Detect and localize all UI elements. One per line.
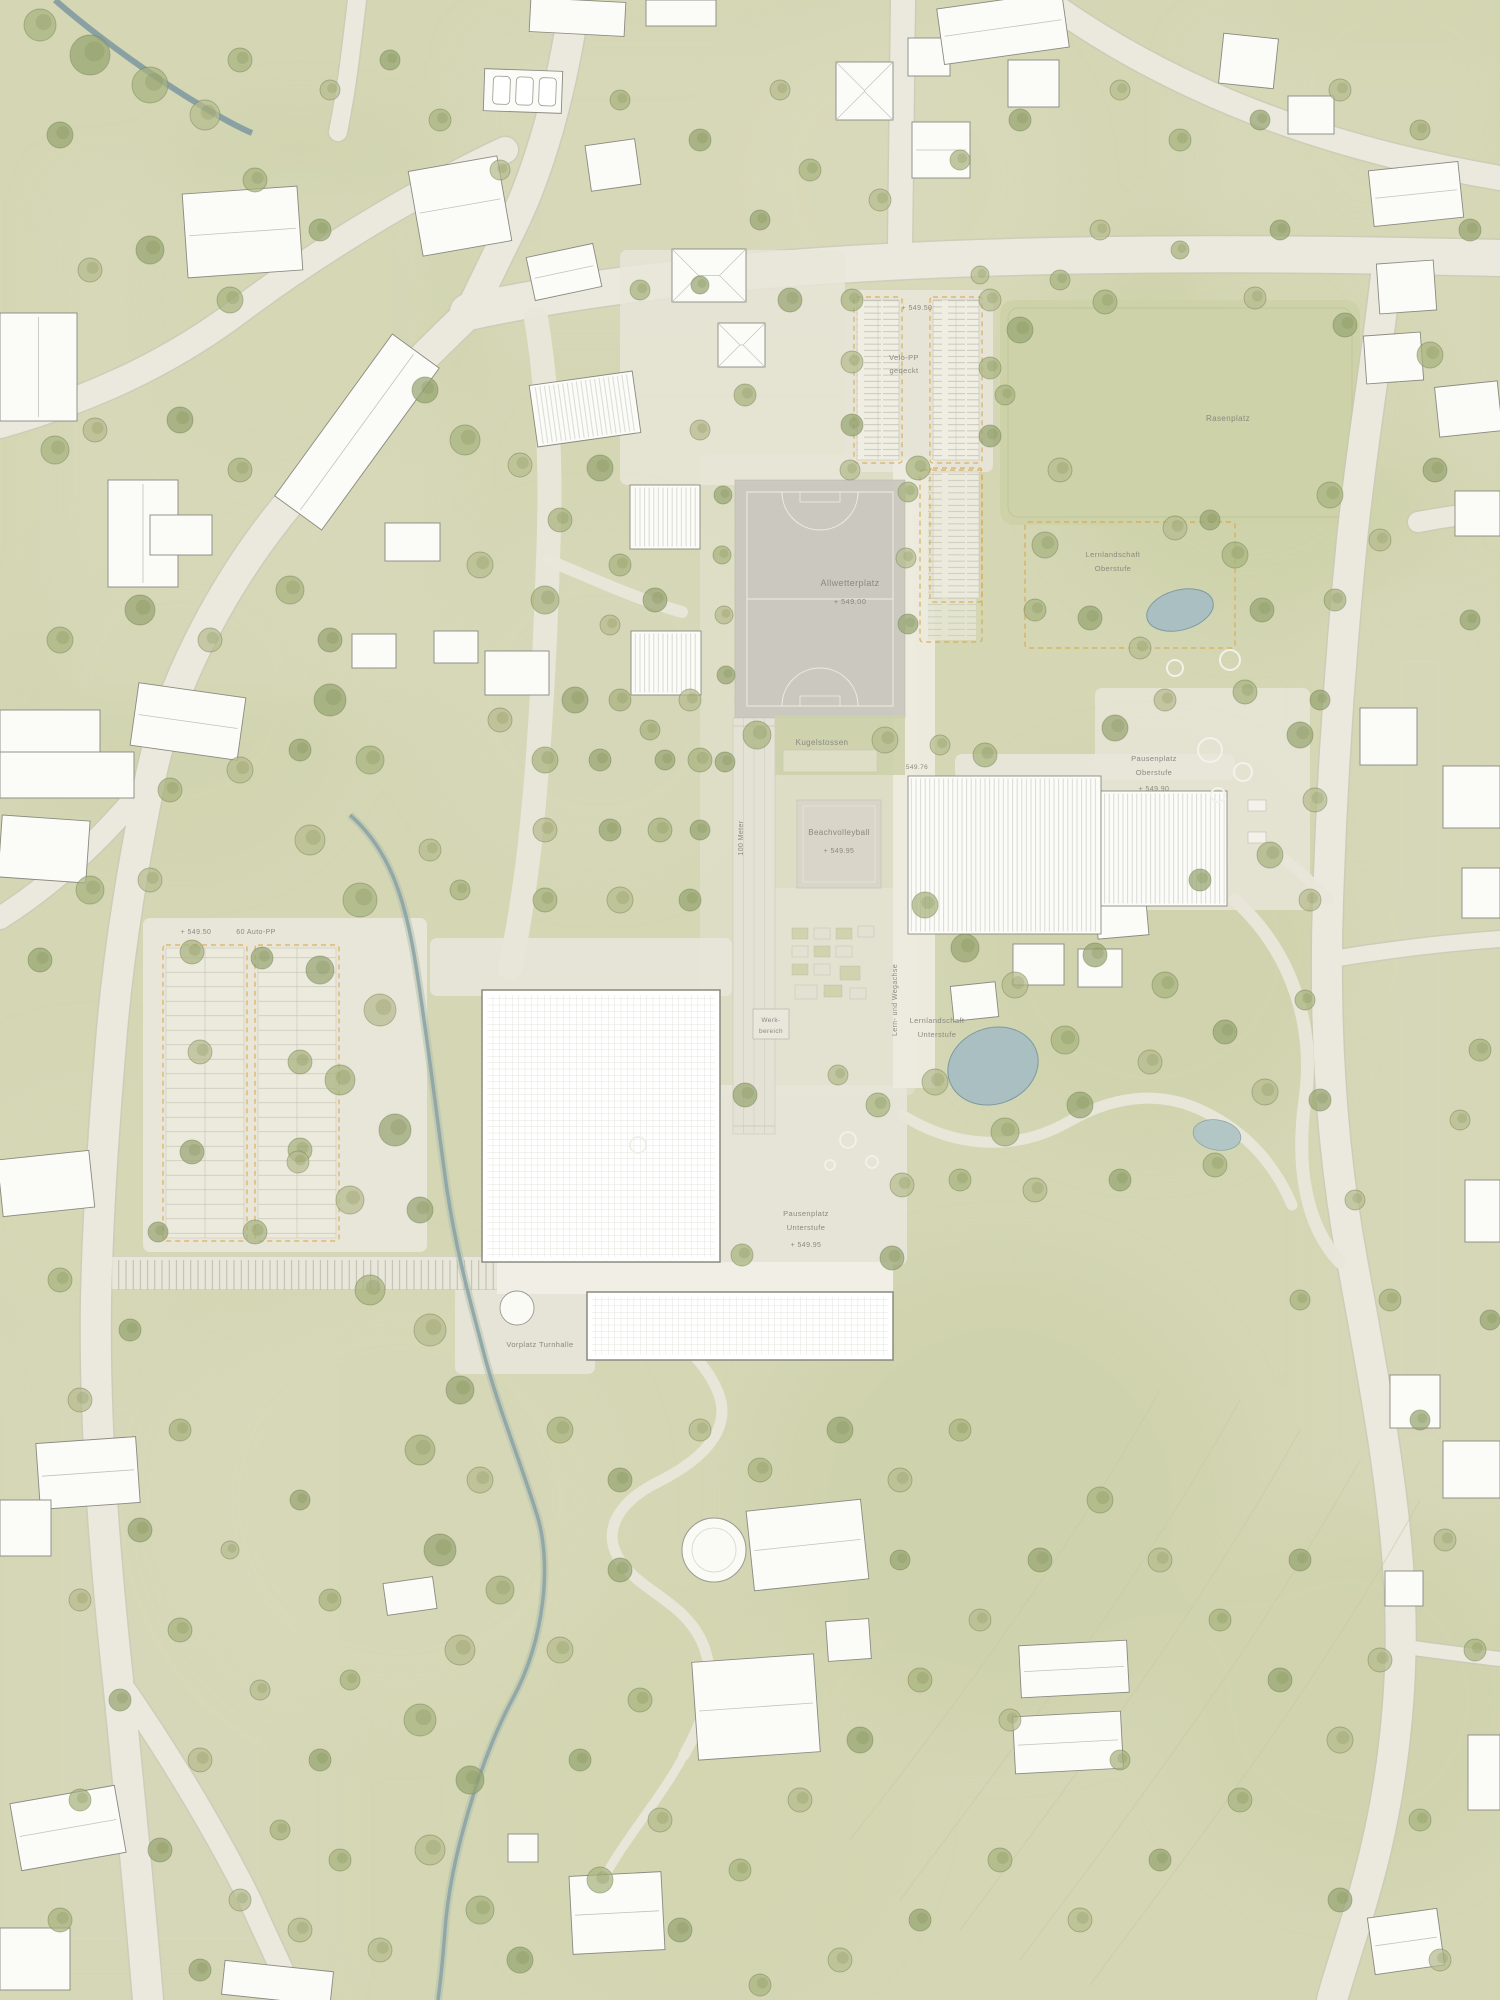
tree-shade [961, 938, 975, 952]
tree-icon [217, 287, 243, 313]
tree-icon [270, 1820, 290, 1840]
map-label-spot-elevation-549-76: 549.76 [906, 764, 928, 771]
building-footprint [585, 139, 641, 192]
building-footprint [0, 752, 134, 798]
tree-icon [770, 80, 790, 100]
tree-icon [533, 888, 557, 912]
tree-icon [148, 1222, 168, 1242]
tree-shade [1417, 123, 1427, 133]
building [1368, 161, 1463, 226]
tree-shade [1061, 1030, 1075, 1044]
building [1435, 381, 1500, 437]
tree-icon [28, 948, 52, 972]
building [836, 62, 893, 120]
tree-shade [897, 1553, 907, 1563]
tree-shade [616, 891, 629, 904]
tree-icon [1429, 1949, 1451, 1971]
tree-shade [189, 944, 201, 956]
tree-shade [556, 1421, 569, 1434]
tree-shade [376, 999, 392, 1015]
building-footprint [383, 1577, 437, 1616]
tree-shade [197, 1752, 209, 1764]
tree-shade [347, 1673, 357, 1683]
tree-shade [1442, 1533, 1453, 1544]
tree-icon [1083, 943, 1107, 967]
tree-shade [957, 1423, 968, 1434]
tree-icon [1110, 80, 1130, 100]
tree-shade [1336, 1731, 1349, 1744]
rect-shape [1000, 300, 1360, 525]
tree-shade [177, 1423, 188, 1434]
tree-shade [897, 1472, 909, 1484]
tree-shade [237, 1893, 248, 1904]
tree-shade [742, 388, 753, 399]
tree-shade [1332, 593, 1343, 604]
tree-icon [83, 418, 107, 442]
tree-icon [119, 1319, 141, 1341]
tree-shade [1147, 1054, 1159, 1066]
tree-shade [987, 361, 998, 372]
tree-icon [973, 743, 997, 767]
tree-shade [753, 725, 767, 739]
tree-icon [1303, 788, 1327, 812]
tree-icon [1028, 1548, 1052, 1572]
tree-shade [1162, 693, 1173, 704]
tree-shade [317, 223, 328, 234]
tree-icon [243, 168, 267, 192]
tree-shade [1252, 291, 1263, 302]
tree-shade [1207, 513, 1217, 523]
rect-shape [858, 926, 874, 937]
tree-icon [1007, 317, 1033, 343]
building [746, 1499, 869, 1591]
rect-shape [824, 985, 842, 997]
tree-shade [917, 1913, 928, 1924]
tree-shade [355, 888, 372, 905]
tree-shade [987, 293, 998, 304]
tree-shade [1102, 294, 1114, 306]
building-footprint [1465, 1180, 1500, 1242]
tree-shade [657, 1812, 669, 1824]
building [631, 631, 701, 695]
tree-shade [297, 1493, 307, 1503]
tree-shade [849, 418, 860, 429]
tree-icon [600, 615, 620, 635]
tree-icon [288, 1050, 312, 1074]
tree-icon [189, 1959, 211, 1981]
building-footprint [508, 1834, 538, 1862]
tree-shade [1097, 223, 1107, 233]
tree-shade [146, 240, 160, 254]
tree-shade [1297, 1293, 1307, 1303]
tree-icon [1287, 722, 1313, 748]
tree-shade [259, 951, 270, 962]
tree-shade [77, 1793, 88, 1804]
tree-icon [276, 576, 304, 604]
building [1219, 33, 1279, 88]
tree-icon [158, 778, 182, 802]
tree-shade [1337, 83, 1348, 94]
tree-icon [1295, 990, 1315, 1010]
tree-icon [869, 189, 891, 211]
tree-icon [734, 384, 756, 406]
tree-icon [1250, 598, 1274, 622]
tree-icon [922, 1069, 948, 1095]
tree-icon [610, 90, 630, 110]
rasenplatz-field [1000, 300, 1360, 525]
map-label-werkbereich-line2: bereich [759, 1028, 783, 1035]
building [36, 1437, 140, 1510]
building [1465, 1180, 1500, 1242]
building [0, 313, 77, 421]
tree-icon [1324, 589, 1346, 611]
tree-icon [951, 934, 979, 962]
tree-shade [777, 83, 787, 93]
building [587, 1292, 893, 1360]
tree-icon [466, 1896, 494, 1924]
tree-shade [155, 1225, 165, 1235]
tree-icon [319, 1589, 341, 1611]
tree-icon [486, 1576, 514, 1604]
rect-shape [792, 964, 808, 975]
building [0, 815, 90, 883]
tree-shade [1259, 602, 1271, 614]
tree-shade [1377, 533, 1388, 544]
tree-icon [547, 1417, 573, 1443]
tree-icon [1109, 1169, 1131, 1191]
bus-icon [516, 77, 534, 106]
tree-shade [327, 1593, 338, 1604]
tree-icon [419, 839, 441, 861]
tree-icon [1051, 1026, 1079, 1054]
tree-icon [607, 887, 633, 913]
tree-shade [1117, 1173, 1128, 1184]
tree-icon [1309, 1089, 1331, 1111]
tree-icon [169, 1419, 191, 1441]
building [0, 1150, 95, 1216]
tree-icon [1450, 1110, 1470, 1130]
tree-icon [1209, 1609, 1231, 1631]
tree-icon [890, 1173, 914, 1197]
roof-ridges [634, 634, 699, 693]
tree-shade [497, 163, 507, 173]
map-label-lernlandschaft-oberstufe-line2: Oberstufe [1095, 564, 1132, 573]
tree-shade [797, 1792, 809, 1804]
tree-icon [508, 453, 532, 477]
building-footprint [826, 1619, 872, 1662]
tree-icon [1149, 1849, 1171, 1871]
tree-icon [655, 750, 675, 770]
tree-icon [125, 595, 155, 625]
tree-icon [608, 1558, 632, 1582]
tree-icon [1333, 313, 1357, 337]
tree-shade [720, 489, 729, 498]
map-label-pausenplatz-unterstufe-elevation: + 549.95 [791, 1242, 822, 1249]
tree-shade [915, 460, 927, 472]
building-footprint [1385, 1571, 1423, 1606]
tree-shade [145, 73, 163, 91]
tree-shade [1487, 1313, 1497, 1323]
tree-shade [899, 1177, 911, 1189]
rect-shape [795, 985, 817, 999]
tree-shade [86, 880, 100, 894]
rect-shape [850, 988, 866, 999]
tree-shade [1157, 1853, 1168, 1864]
tree-shade [1296, 726, 1309, 739]
tree-shade [189, 1144, 201, 1156]
rect-shape [814, 946, 830, 957]
tree-shade [977, 269, 986, 278]
tree-shade [542, 892, 554, 904]
tree-shade [391, 1119, 407, 1135]
tree-icon [828, 1065, 848, 1085]
building [1360, 708, 1417, 765]
tree-icon [1299, 889, 1321, 911]
tree-shade [1197, 873, 1208, 884]
tree-shade [1472, 1643, 1483, 1654]
tree-shade [903, 551, 913, 561]
tree-shade [92, 422, 104, 434]
tree-shade [456, 1380, 470, 1394]
tree-icon [841, 351, 863, 373]
tree-icon [799, 159, 821, 181]
tree-icon [979, 289, 1001, 311]
map-label-lernlandschaft-oberstufe-line1: Lernlandschaft [1086, 550, 1141, 559]
tree-shade [1007, 1713, 1018, 1724]
tree-icon [1009, 109, 1031, 131]
building [646, 0, 716, 26]
building [0, 752, 134, 798]
tree-icon [1228, 1788, 1252, 1812]
tree-icon [748, 1458, 772, 1482]
rect-shape [836, 928, 852, 939]
tree-icon [1189, 869, 1211, 891]
building-footprint [1455, 491, 1500, 536]
building [434, 631, 478, 663]
tree-icon [148, 1838, 172, 1862]
tree-shade [147, 872, 159, 884]
tree-shade [1087, 610, 1099, 622]
tree-shade [426, 1319, 442, 1335]
building-footprint [529, 0, 626, 36]
tree-shade [997, 1852, 1009, 1864]
building [692, 1654, 821, 1760]
tree-shade [466, 1770, 480, 1784]
tree-shade [931, 1073, 944, 1086]
tree-shade [252, 1224, 264, 1236]
building-footprint [0, 1500, 51, 1556]
tree-icon [76, 876, 104, 904]
tree-icon [562, 687, 588, 713]
bench [1248, 800, 1266, 811]
tree-shade [1212, 1157, 1224, 1169]
tree-icon [715, 606, 733, 624]
tree-icon [424, 1534, 456, 1566]
tree-shade [877, 193, 888, 204]
tree-shade [1242, 684, 1254, 696]
tree-icon [41, 436, 69, 464]
tree-shade [77, 1593, 88, 1604]
tree-shade [1437, 1953, 1448, 1964]
tree-shade [436, 1539, 452, 1555]
tree-icon [290, 1490, 310, 1510]
tree-icon [48, 1908, 72, 1932]
tree-shade [1352, 1193, 1362, 1203]
tree-shade [176, 411, 189, 424]
tree-icon [1369, 529, 1391, 551]
tree-icon [1328, 1888, 1352, 1912]
tree-icon [1268, 1668, 1292, 1692]
tree-shade [837, 1952, 849, 1964]
tree-shade [905, 485, 915, 495]
map-label-wegachse: Lern- und Wegachse [892, 964, 899, 1036]
tree-icon [847, 1727, 873, 1753]
tree-icon [547, 1637, 573, 1663]
tree-shade [697, 1423, 708, 1434]
tree-icon [289, 739, 311, 761]
building [1288, 96, 1334, 134]
tree-shade [257, 1683, 267, 1693]
tree-shade [1076, 1096, 1089, 1109]
tree-shade [77, 1392, 89, 1404]
tree-shade [1117, 83, 1127, 93]
tree-shade [657, 822, 669, 834]
tree-shade [252, 172, 264, 184]
tree-shade [1432, 462, 1444, 474]
building [0, 1928, 70, 1990]
tree-icon [1090, 220, 1110, 240]
tree-icon [1317, 482, 1343, 508]
building-footprint [1360, 708, 1417, 765]
tree-icon [1460, 610, 1480, 630]
round-pavilion [682, 1518, 746, 1582]
tree-shade [316, 960, 330, 974]
tree-icon [1050, 270, 1070, 290]
building [569, 1872, 665, 1955]
building [352, 634, 396, 668]
building [1008, 60, 1059, 107]
tree-icon [1410, 120, 1430, 140]
tree-icon [969, 1609, 991, 1631]
tree-shade [577, 1753, 588, 1764]
tree-shade [719, 549, 728, 558]
tree-icon [414, 1314, 446, 1346]
tree-icon [167, 407, 193, 433]
tree-icon [1379, 1289, 1401, 1311]
tree-shade [127, 1323, 138, 1334]
tree-icon [138, 868, 162, 892]
tree-shade [1157, 1552, 1169, 1564]
map-label-rasenplatz: Rasenplatz [1206, 414, 1250, 423]
map-label-pausenplatz-unterstufe-line1: Pausenplatz [783, 1209, 829, 1218]
tree-icon [343, 883, 377, 917]
tree-shade [286, 580, 300, 594]
tree-icon [949, 1169, 971, 1191]
building-footprint [0, 1928, 70, 1990]
tree-shade [617, 1472, 629, 1484]
tree-icon [898, 482, 918, 502]
tree-icon [69, 1589, 91, 1611]
tree-icon [340, 1670, 360, 1690]
tree-shade [541, 751, 554, 764]
tree-shade [237, 52, 249, 64]
tree-icon [1203, 1153, 1227, 1177]
building [1363, 332, 1423, 384]
map-label-pausenplatz-oberstufe-line1: Pausenplatz [1131, 754, 1177, 763]
tree-icon [1469, 1039, 1491, 1061]
tree-icon [691, 276, 709, 294]
tree-shade [541, 590, 555, 604]
tree-shade [1011, 976, 1024, 989]
tree-shade [875, 1097, 887, 1109]
tree-shade [421, 381, 434, 394]
tree-icon [679, 689, 701, 711]
tree-icon [979, 425, 1001, 447]
tree-icon [569, 1749, 591, 1771]
tree-shade [136, 600, 151, 615]
tree-shade [687, 893, 698, 904]
tree-icon [1032, 532, 1058, 558]
tree-shade [426, 1840, 441, 1855]
map-label-laufbahn: 100 Meter [738, 820, 745, 855]
tree-shade [476, 1471, 489, 1484]
tree-shade [617, 558, 628, 569]
tree-shade [346, 1190, 360, 1204]
tree-shade [306, 830, 321, 845]
building-footprint [1288, 96, 1334, 134]
map-label-werkbereich-line1: Werk- [761, 1017, 780, 1024]
tree-icon [1068, 1908, 1092, 1932]
tree-shade [337, 1853, 348, 1864]
tree-icon [714, 486, 732, 504]
tree-icon [930, 735, 950, 755]
tree-shade [835, 1068, 845, 1078]
tree-icon [1152, 972, 1178, 998]
tree-icon [364, 994, 396, 1026]
tree-icon [48, 1268, 72, 1292]
tree-icon [136, 236, 164, 264]
tree-icon [507, 1947, 533, 1973]
building [1443, 766, 1500, 828]
tree-shade [1277, 1672, 1289, 1684]
tree-shade [617, 93, 627, 103]
tree-icon [778, 288, 802, 312]
tree-icon [1110, 1750, 1130, 1770]
tree-shade [982, 747, 994, 759]
tree-shade [1117, 1753, 1127, 1763]
tree-icon [872, 727, 898, 753]
tree-icon [715, 752, 735, 772]
tree-shade [856, 1731, 869, 1744]
building-footprint [150, 515, 212, 555]
building-footprint [0, 1150, 95, 1216]
tree-shade [921, 896, 934, 909]
tree-shade [1172, 520, 1184, 532]
tree-icon [446, 1376, 474, 1404]
tree-shade [607, 618, 617, 628]
tree-shade [1426, 346, 1439, 359]
tree-shade [1041, 536, 1054, 549]
round-planter [500, 1291, 534, 1325]
tree-icon [1329, 79, 1351, 101]
tree-shade [557, 512, 569, 524]
tree-icon [1200, 510, 1220, 530]
building-footprint [1376, 260, 1436, 314]
tree-icon [132, 67, 168, 103]
tree-shade [366, 1280, 381, 1295]
tree-shade [917, 1672, 929, 1684]
tree-icon [1024, 599, 1046, 621]
